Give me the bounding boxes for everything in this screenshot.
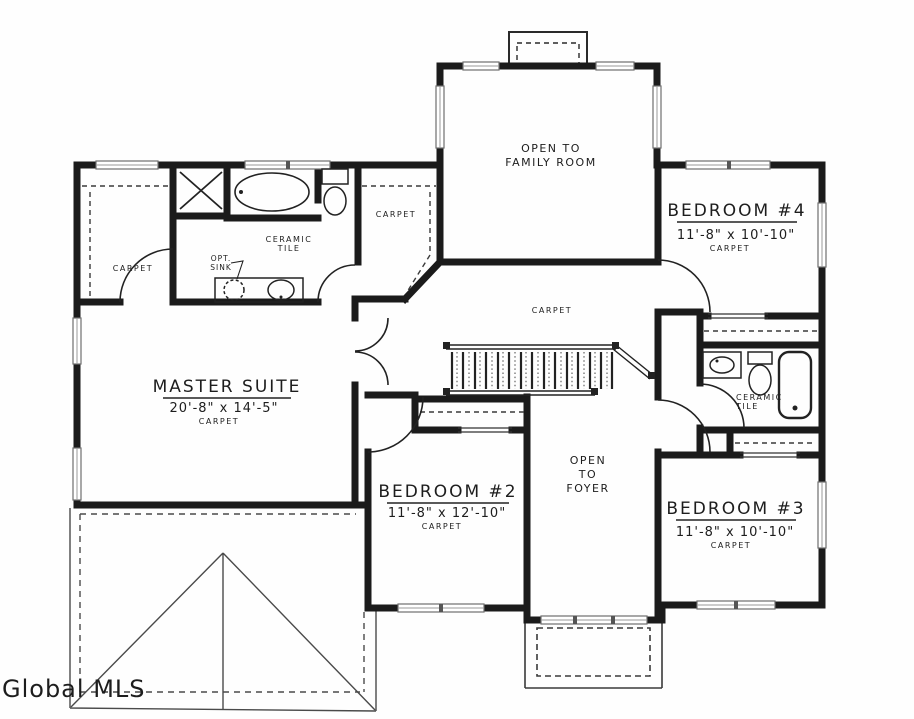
optional-sink-icon [224,280,244,300]
bedroom4-door-arc [658,260,710,312]
family-room-label-line2: FAMILY ROOM [505,156,596,169]
master-suite-dims: 20'-8" x 14'-5" [169,401,278,416]
entry-roof-outline [525,622,662,688]
bedroom3-name: BEDROOM #3 [666,499,805,519]
bedroom2-name: BEDROOM #2 [378,482,517,502]
staircase [443,342,655,395]
chimney-outline [509,32,587,66]
master-vanity-icon [215,278,303,302]
hall-bath-toilet-icon [748,352,772,395]
bedroom2-dims: 11'-8" x 12'-10" [388,506,506,521]
hall-bath-sink-icon [703,352,741,378]
wic-floor: CARPET [113,264,153,273]
master-suite-floor: CARPET [199,417,239,426]
master-suite-name: MASTER SUITE [153,377,302,397]
opt-sink-label-line1: OPT. [211,254,232,263]
master-double-door-arc-2 [355,352,388,385]
master-bath-material-line2: TILE [277,244,301,253]
floor-plan: OPEN TO FAMILY ROOM BEDROOM #4 11'-8" x … [0,0,914,719]
master-bathtub-icon [235,173,309,211]
bedroom2-floor: CARPET [422,522,462,531]
bedroom4-floor: CARPET [710,244,750,253]
family-room-label-line1: OPEN TO [521,142,581,155]
shower-icon [180,172,222,209]
floor-plan-svg: OPEN TO FAMILY ROOM BEDROOM #4 11'-8" x … [0,0,914,719]
bedroom3-floor: CARPET [711,541,751,550]
stair-treads [452,352,612,389]
hall-bath-material-line1: CERAMIC [736,393,783,402]
bedroom4-dims: 11'-8" x 10'-10" [677,228,795,243]
foyer-label-line3: FOYER [566,482,609,495]
bedroom4-name: BEDROOM #4 [667,201,806,221]
master-toilet-icon [322,169,348,215]
master-bath-material-line1: CERAMIC [266,235,313,244]
opt-sink-label-line2: SINK [210,263,232,272]
master-bath-door-arc [318,265,355,302]
bedroom3-dims: 11'-8" x 10'-10" [676,525,794,540]
hallway-floor: CARPET [532,306,572,315]
watermark-text: Global MLS [2,675,146,703]
wic-door-arc [120,249,173,302]
foyer-label-line1: OPEN [570,454,606,467]
foyer-label-line2: TO [578,468,597,481]
opt-sink-leader-line [231,261,243,279]
hall-bath-material-line2: TILE [735,402,759,411]
master-double-door-arc-1 [355,318,388,351]
hall-closet-floor: CARPET [376,210,416,219]
hall-bath-tub-icon [779,352,811,418]
